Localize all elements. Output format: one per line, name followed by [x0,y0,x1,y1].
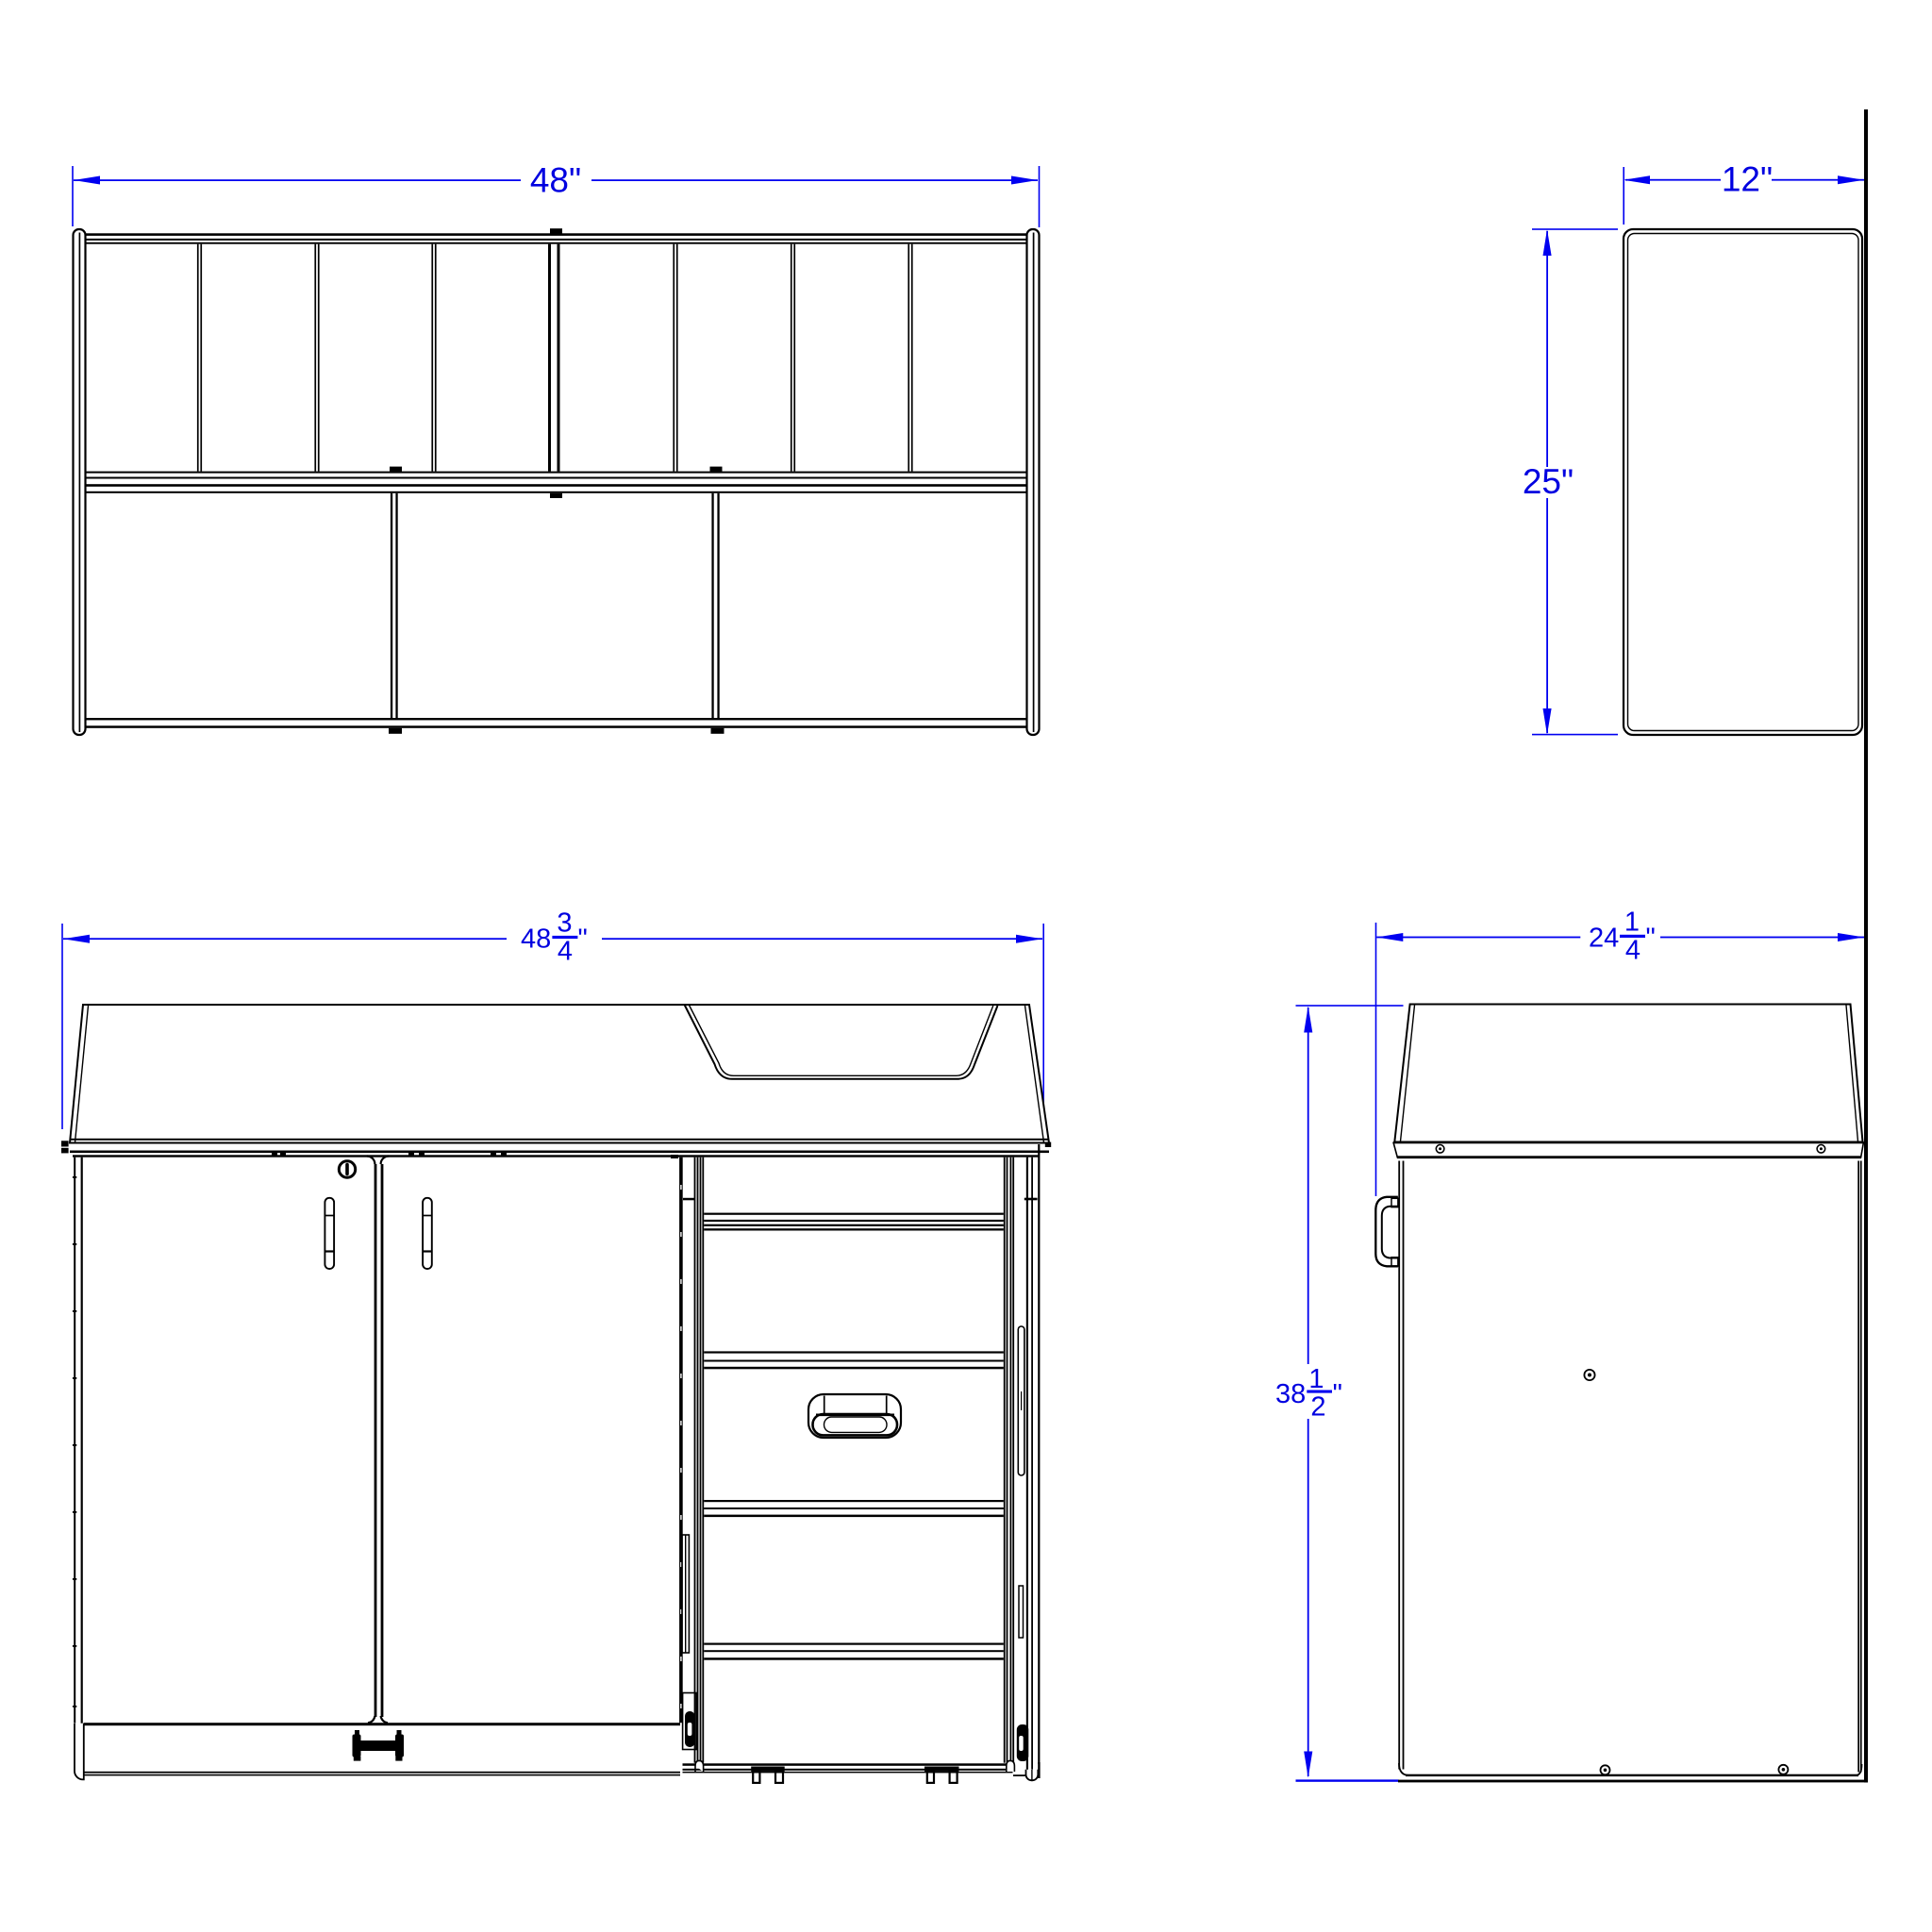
svg-text:4: 4 [1625,935,1641,965]
svg-text:": " [1333,1379,1342,1409]
svg-text:4: 4 [558,937,573,967]
svg-text:48": 48" [530,161,581,200]
svg-text:1: 1 [1308,1364,1324,1394]
svg-text:25": 25" [1523,462,1574,501]
svg-text:1: 1 [1624,907,1640,937]
svg-text:": " [1646,924,1656,954]
svg-text:48: 48 [521,924,551,955]
svg-text:12": 12" [1722,160,1773,199]
svg-text:": " [578,924,588,955]
svg-text:2: 2 [1310,1392,1325,1423]
svg-text:38: 38 [1275,1379,1306,1409]
svg-text:24: 24 [1589,924,1619,954]
svg-text:3: 3 [557,908,572,939]
